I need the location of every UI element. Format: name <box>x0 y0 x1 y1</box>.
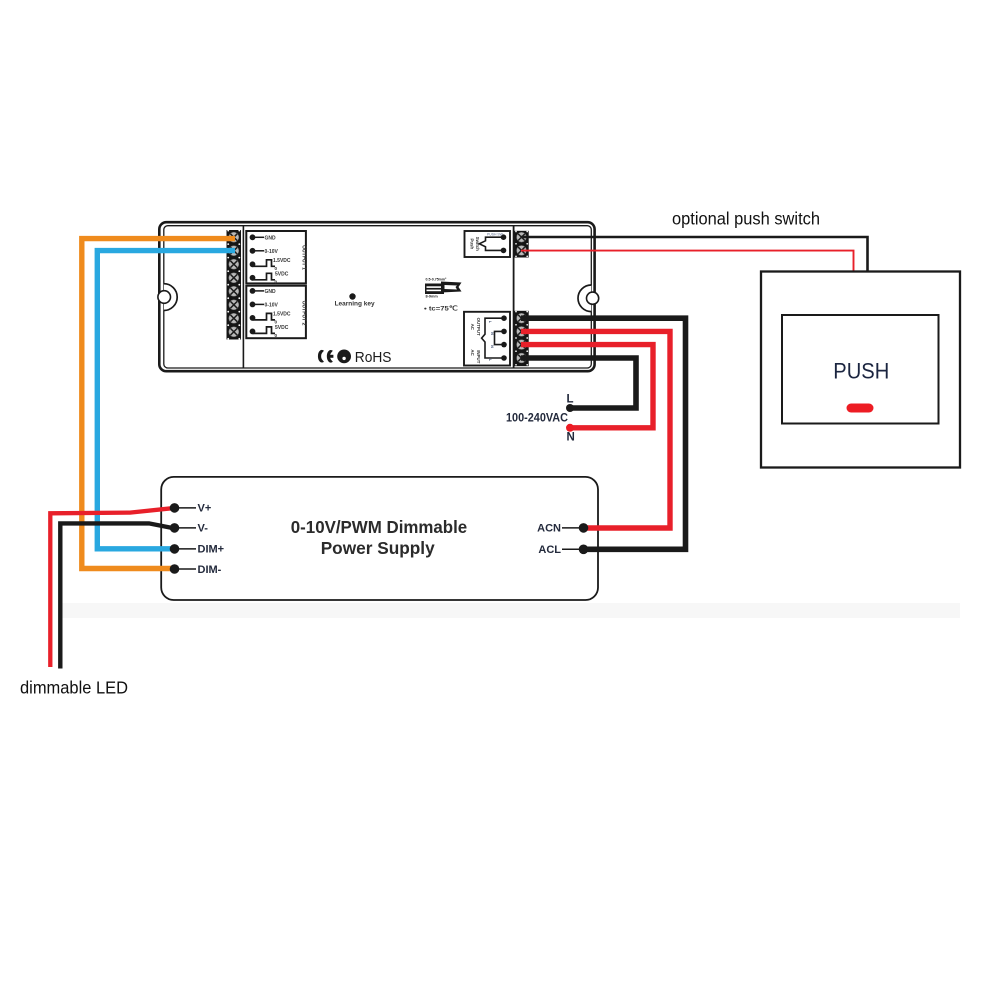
svg-text:GND: GND <box>265 289 277 295</box>
svg-text:• tc=75℃: • tc=75℃ <box>424 305 458 313</box>
svg-text:GND: GND <box>265 236 277 242</box>
svg-text:ACN: ACN <box>537 523 561 535</box>
svg-text:0-10V/PWM Dimmable: 0-10V/PWM Dimmable <box>291 517 468 537</box>
svg-text:Push: Push <box>469 238 474 249</box>
svg-text:8-9mm: 8-9mm <box>426 295 439 299</box>
svg-text:5VDC: 5VDC <box>275 325 289 331</box>
svg-text:dimmable LED: dimmable LED <box>20 678 128 698</box>
svg-text:PUSH SW: PUSH SW <box>487 233 504 237</box>
svg-text:DIM+: DIM+ <box>198 544 225 556</box>
svg-text:V+: V+ <box>198 503 212 515</box>
svg-text:N: N <box>490 345 494 348</box>
svg-text:5VDC: 5VDC <box>275 271 289 277</box>
svg-text:INPUT: INPUT <box>476 350 481 363</box>
svg-text:L: L <box>567 394 574 406</box>
svg-text:Power Supply: Power Supply <box>321 538 435 558</box>
svg-text:100-240VAC: 100-240VAC <box>506 411 568 425</box>
svg-text:AC: AC <box>470 349 475 356</box>
svg-text:OUTPUT 1: OUTPUT 1 <box>300 245 306 270</box>
svg-text:optional push switch: optional push switch <box>672 209 820 229</box>
svg-text:RoHS: RoHS <box>355 350 392 366</box>
svg-text:0.5-0.75mm²: 0.5-0.75mm² <box>426 278 448 282</box>
svg-text:0-10V: 0-10V <box>265 249 279 255</box>
svg-text:OUTPUT: OUTPUT <box>476 318 481 336</box>
svg-text:0: 0 <box>275 266 278 271</box>
svg-text:N: N <box>490 332 494 335</box>
svg-text:DIM-: DIM- <box>198 564 222 576</box>
svg-text:V-: V- <box>198 523 209 535</box>
svg-text:N: N <box>567 432 575 444</box>
svg-text:ACL: ACL <box>538 544 561 556</box>
svg-text:PUSH: PUSH <box>833 359 889 384</box>
svg-text:0: 0 <box>275 279 278 284</box>
svg-text:0: 0 <box>275 319 278 324</box>
svg-text:0: 0 <box>275 333 278 338</box>
svg-text:1.5VDC: 1.5VDC <box>273 311 291 317</box>
svg-text:0-10V: 0-10V <box>265 303 279 309</box>
svg-text:Learning key: Learning key <box>335 301 375 308</box>
svg-text:1.5VDC: 1.5VDC <box>273 258 291 264</box>
svg-text:OUTPUT 2: OUTPUT 2 <box>300 301 306 326</box>
svg-text:AC: AC <box>470 324 475 331</box>
